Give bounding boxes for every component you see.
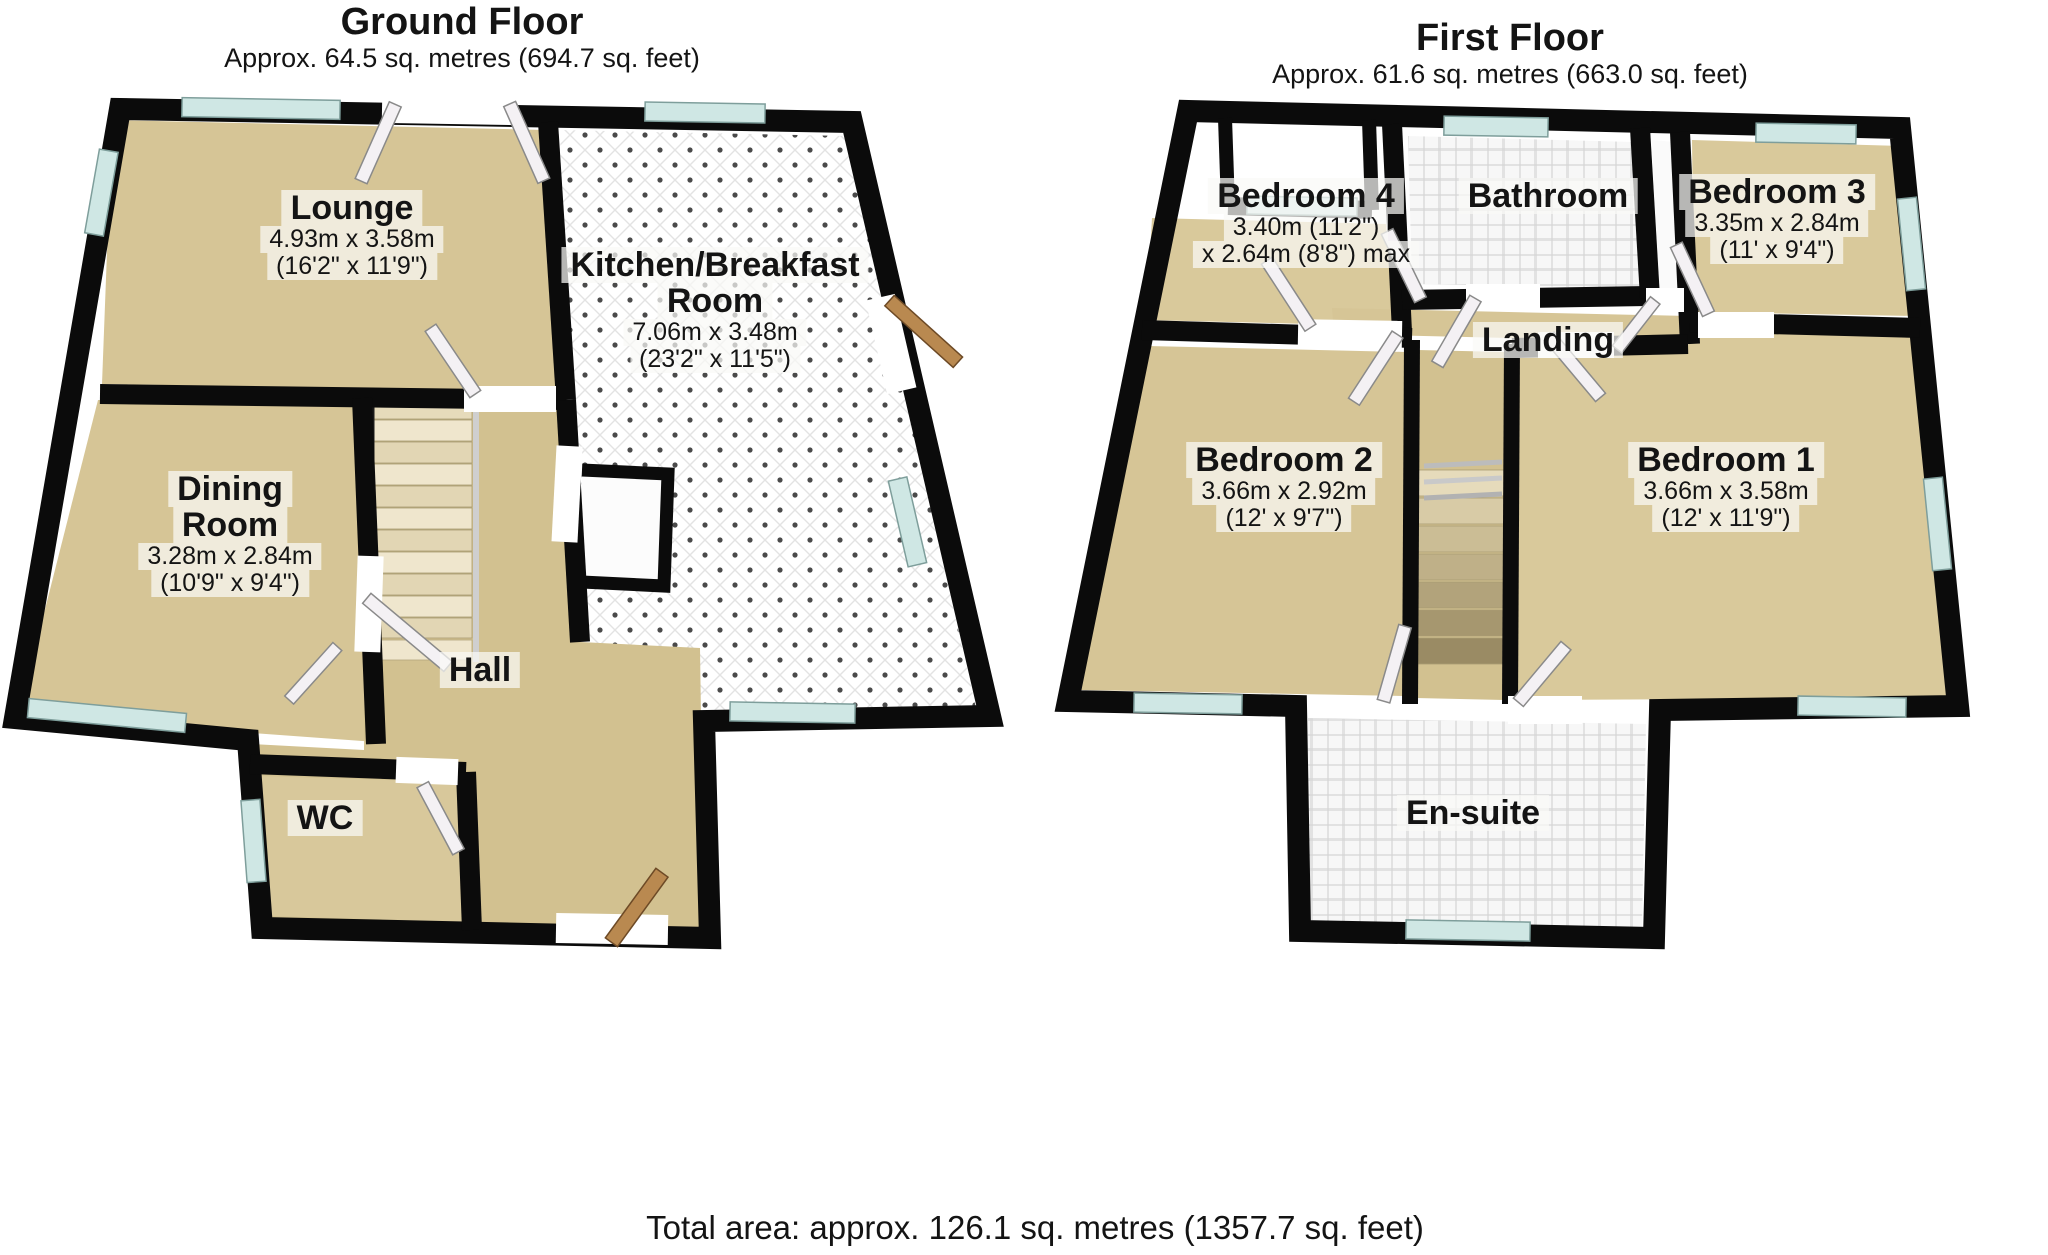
total-area-text: Total area: approx. 126.1 sq. metres (13…	[646, 1209, 1424, 1247]
window-ensuite	[1406, 920, 1530, 941]
room-label-landing: Landing	[1473, 322, 1623, 358]
ground-floor-title-block: Ground Floor Approx. 64.5 sq. metres (69…	[224, 1, 700, 73]
room-label-lounge: Lounge 4.93m x 3.58m (16'2" x 11'9")	[260, 190, 443, 280]
room-label-ensuite: En-suite	[1397, 795, 1549, 831]
first-floor-title: First Floor	[1272, 17, 1748, 59]
room-label-dining: Dining Room 3.28m x 2.84m (10'9" x 9'4")	[138, 471, 321, 597]
room-label-bedroom3: Bedroom 3 3.35m x 2.84m (11' x 9'4")	[1679, 174, 1875, 264]
floorplan-page: Ground Floor Approx. 64.5 sq. metres (69…	[0, 0, 2048, 1255]
ground-floor-title: Ground Floor	[224, 1, 700, 43]
staircase-first	[1416, 350, 1506, 700]
first-floor-subtitle: Approx. 61.6 sq. metres (663.0 sq. feet)	[1272, 59, 1748, 89]
first-floor-title-block: First Floor Approx. 61.6 sq. metres (663…	[1272, 17, 1748, 89]
room-label-bathroom: Bathroom	[1459, 178, 1638, 214]
room-label-kitchen: Kitchen/Breakfast Room 7.06m x 3.48m (23…	[561, 247, 868, 373]
window-bedroom2-bottom	[1134, 693, 1242, 714]
room-label-bedroom1: Bedroom 1 3.66m x 3.58m (12' x 11'9")	[1628, 442, 1824, 532]
room-label-wc: WC	[288, 800, 363, 836]
ground-floor-subtitle: Approx. 64.5 sq. metres (694.7 sq. feet)	[224, 43, 700, 73]
window-bedroom1-bottom	[1798, 696, 1906, 717]
window-bathroom	[1444, 116, 1548, 137]
window-lounge-top	[182, 98, 340, 120]
room-label-hall: Hall	[440, 652, 520, 688]
window-kitchen-bottom	[730, 702, 855, 723]
room-label-bedroom4: Bedroom 4 3.40m (11'2") x 2.64m (8'8") m…	[1193, 178, 1419, 268]
kitchen-alcove	[582, 470, 668, 586]
window-kitchen-top	[645, 102, 765, 123]
room-label-bedroom2: Bedroom 2 3.66m x 2.92m (12' x 9'7")	[1186, 442, 1382, 532]
window-bedroom3-top	[1756, 123, 1856, 144]
